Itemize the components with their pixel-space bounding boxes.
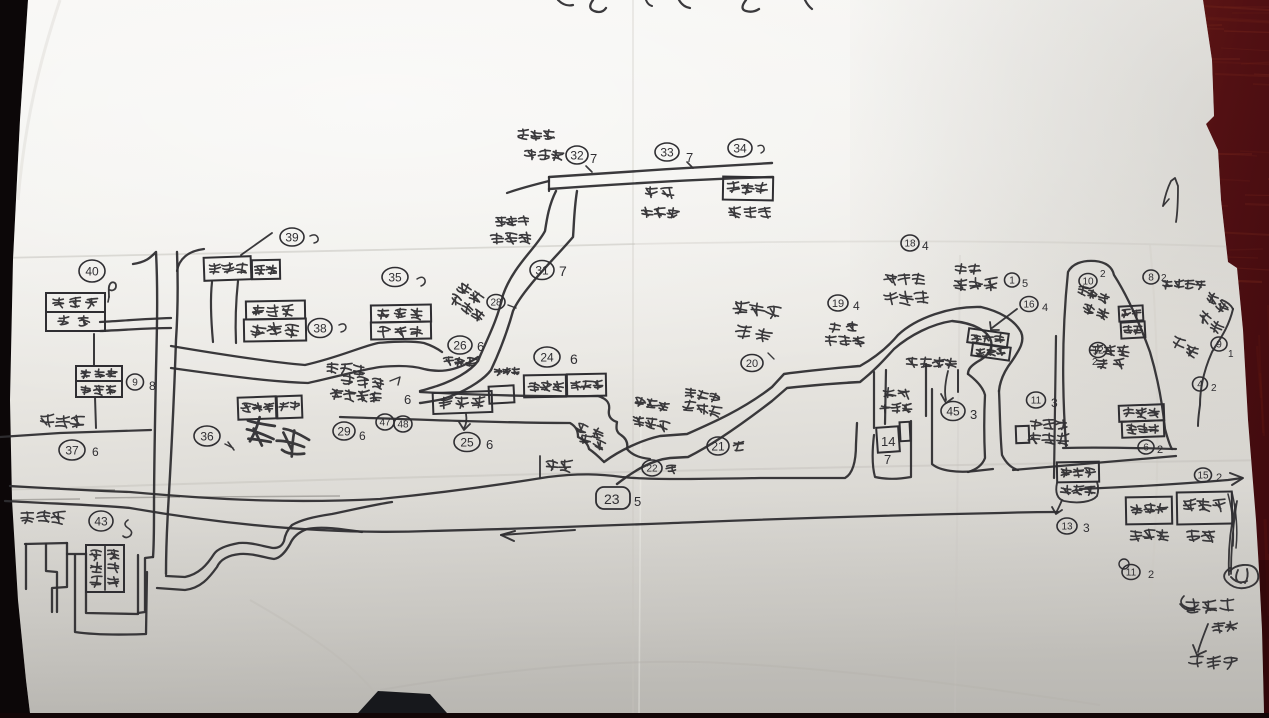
- svg-text:3: 3: [1051, 396, 1058, 410]
- svg-text:22: 22: [646, 464, 658, 475]
- svg-text:14: 14: [881, 434, 895, 449]
- svg-text:6: 6: [404, 392, 411, 407]
- svg-text:23: 23: [604, 491, 620, 507]
- svg-text:4: 4: [853, 299, 860, 313]
- svg-text:5: 5: [1022, 278, 1028, 290]
- svg-text:7: 7: [884, 452, 891, 467]
- svg-text:33: 33: [660, 145, 674, 159]
- svg-text:21: 21: [711, 439, 725, 453]
- svg-text:9: 9: [1216, 340, 1222, 351]
- svg-text:28: 28: [490, 298, 502, 309]
- svg-text:26: 26: [453, 338, 467, 352]
- svg-text:3: 3: [1083, 521, 1090, 535]
- svg-text:9: 9: [132, 378, 138, 389]
- svg-text:35: 35: [388, 270, 402, 284]
- svg-text:25: 25: [460, 435, 474, 449]
- svg-text:2: 2: [1100, 269, 1106, 280]
- svg-text:6: 6: [92, 445, 99, 459]
- svg-text:29: 29: [337, 424, 351, 438]
- svg-text:5: 5: [634, 494, 641, 509]
- svg-text:24: 24: [540, 350, 554, 364]
- svg-text:36: 36: [200, 429, 214, 443]
- svg-text:7: 7: [559, 263, 567, 279]
- svg-text:2: 2: [1157, 444, 1163, 456]
- svg-text:3: 3: [970, 407, 977, 422]
- svg-text:13: 13: [1061, 522, 1073, 533]
- svg-text:6: 6: [477, 339, 484, 354]
- svg-text:48: 48: [397, 420, 409, 431]
- svg-text:7: 7: [686, 150, 693, 165]
- svg-text:32: 32: [570, 148, 584, 162]
- svg-text:38: 38: [313, 321, 327, 335]
- svg-text:18: 18: [904, 239, 916, 250]
- svg-text:4: 4: [1197, 380, 1203, 391]
- svg-text:1: 1: [1009, 276, 1015, 287]
- svg-text:6: 6: [570, 351, 578, 367]
- svg-text:16: 16: [1023, 300, 1035, 311]
- svg-text:4: 4: [1042, 302, 1048, 314]
- svg-text:47: 47: [379, 418, 391, 429]
- svg-text:8: 8: [1148, 273, 1154, 284]
- svg-text:45: 45: [946, 404, 960, 418]
- svg-text:10: 10: [1082, 277, 1094, 288]
- svg-text:8: 8: [149, 379, 156, 393]
- svg-text:6: 6: [486, 437, 493, 452]
- svg-text:1: 1: [1228, 349, 1234, 360]
- svg-text:11: 11: [1031, 396, 1042, 407]
- svg-text:43: 43: [94, 514, 108, 528]
- svg-text:7: 7: [590, 151, 597, 166]
- svg-text:2: 2: [1216, 472, 1222, 484]
- svg-text:6: 6: [359, 429, 366, 443]
- svg-text:37: 37: [65, 443, 79, 457]
- svg-text:31: 31: [535, 263, 549, 277]
- svg-text:34: 34: [733, 141, 747, 155]
- svg-text:2: 2: [1211, 383, 1217, 394]
- svg-text:40: 40: [85, 264, 99, 278]
- svg-text:2: 2: [1148, 569, 1154, 581]
- svg-text:20: 20: [746, 358, 758, 370]
- svg-text:2: 2: [1092, 357, 1098, 368]
- svg-text:11: 11: [1126, 568, 1137, 579]
- svg-text:6: 6: [1143, 443, 1149, 454]
- svg-text:4: 4: [922, 239, 929, 253]
- svg-text:19: 19: [832, 298, 844, 310]
- svg-text:15: 15: [1197, 471, 1209, 482]
- svg-text:39: 39: [285, 230, 299, 244]
